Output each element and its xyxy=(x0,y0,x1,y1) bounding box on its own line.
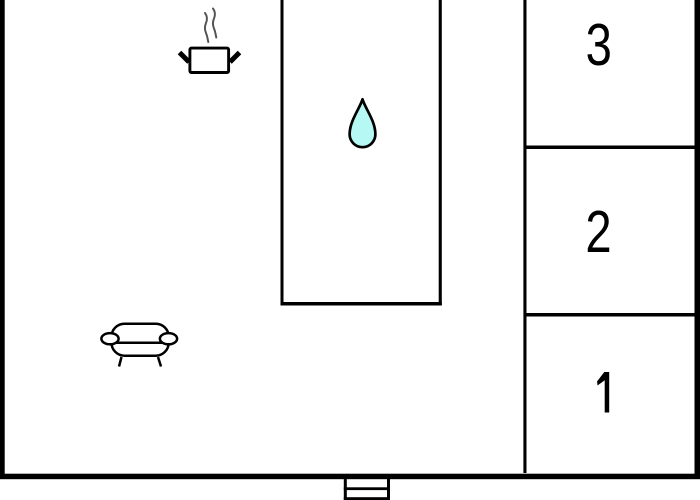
svg-text:2: 2 xyxy=(585,200,611,265)
svg-text:3: 3 xyxy=(586,13,612,78)
